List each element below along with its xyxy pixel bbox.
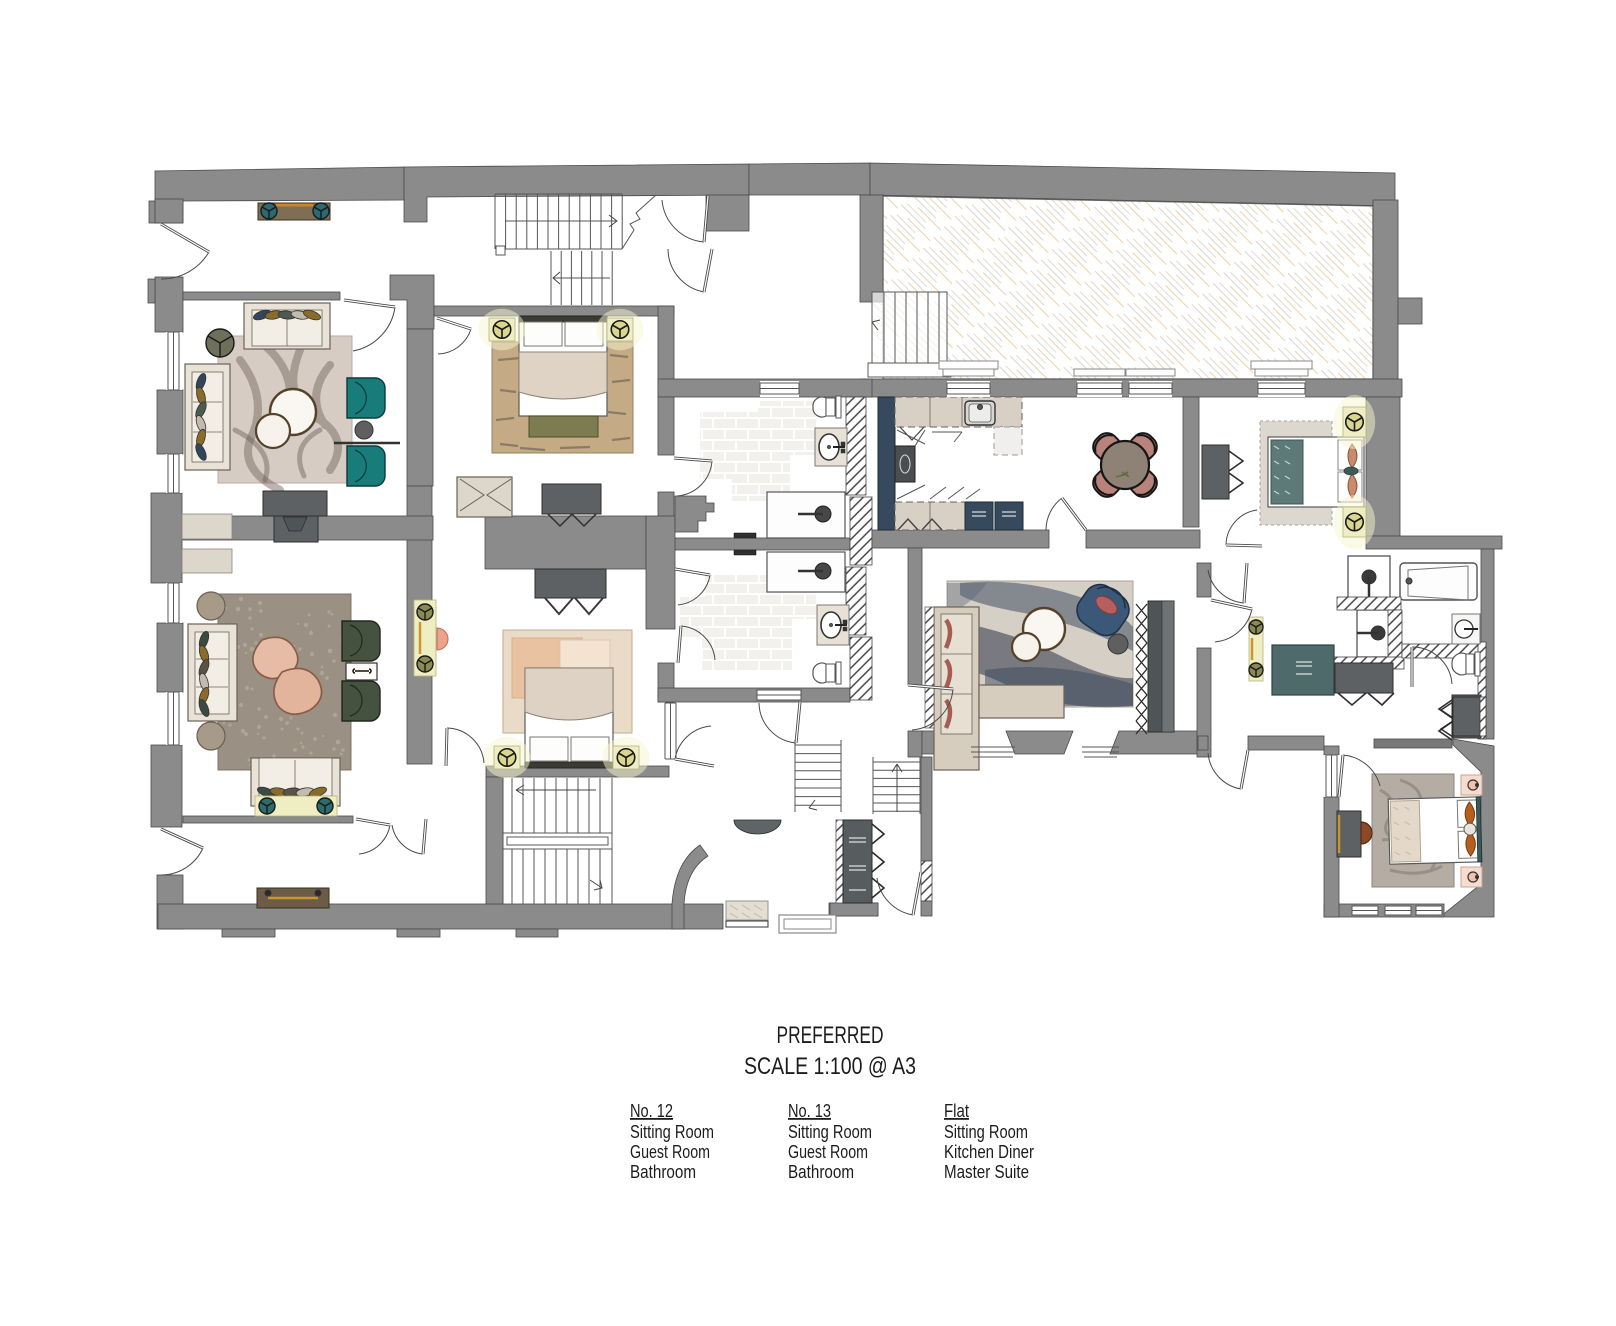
svg-text:PREFERRED: PREFERRED	[777, 1022, 884, 1049]
svg-text:Guest Room: Guest Room	[788, 1142, 868, 1162]
svg-text:Sitting Room: Sitting Room	[788, 1122, 872, 1142]
svg-text:Flat: Flat	[944, 1101, 969, 1121]
svg-text:Master Suite: Master Suite	[944, 1162, 1029, 1182]
svg-text:Kitchen Diner: Kitchen Diner	[944, 1142, 1034, 1162]
svg-text:No. 12: No. 12	[630, 1101, 673, 1121]
svg-text:Bathroom: Bathroom	[630, 1162, 696, 1182]
svg-text:Bathroom: Bathroom	[788, 1162, 854, 1182]
svg-text:Sitting Room: Sitting Room	[944, 1122, 1028, 1142]
svg-text:Sitting Room: Sitting Room	[630, 1122, 714, 1142]
svg-text:No. 13: No. 13	[788, 1101, 831, 1121]
svg-text:Guest Room: Guest Room	[630, 1142, 710, 1162]
svg-text:SCALE 1:100 @ A3: SCALE 1:100 @ A3	[744, 1053, 916, 1080]
